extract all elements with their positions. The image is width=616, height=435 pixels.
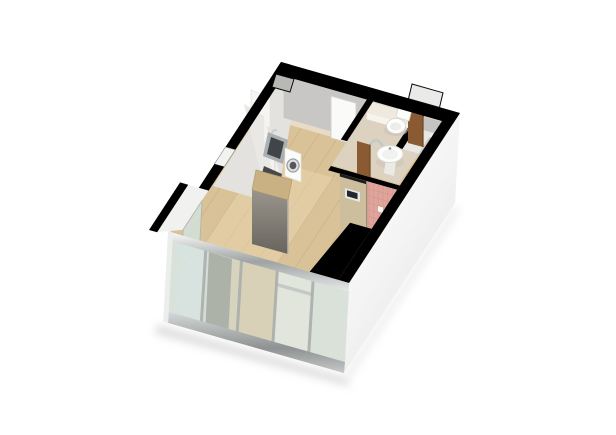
glass-panel-4 bbox=[273, 271, 313, 353]
toilet-seat bbox=[390, 123, 401, 131]
washer-door-glass bbox=[290, 162, 297, 170]
glass-panel-3 bbox=[238, 260, 278, 342]
floor-plan-image bbox=[0, 0, 616, 435]
floor-plan-svg bbox=[0, 0, 616, 435]
glass-panel-1 bbox=[166, 240, 206, 322]
pedestal-sink-bowl bbox=[382, 150, 398, 160]
glass-panel-5 bbox=[309, 281, 349, 363]
bathroom-door-open bbox=[357, 141, 370, 177]
sink-faucet-dot bbox=[389, 147, 392, 150]
glass-panel-2 bbox=[202, 250, 242, 332]
fridge-front bbox=[252, 190, 288, 254]
